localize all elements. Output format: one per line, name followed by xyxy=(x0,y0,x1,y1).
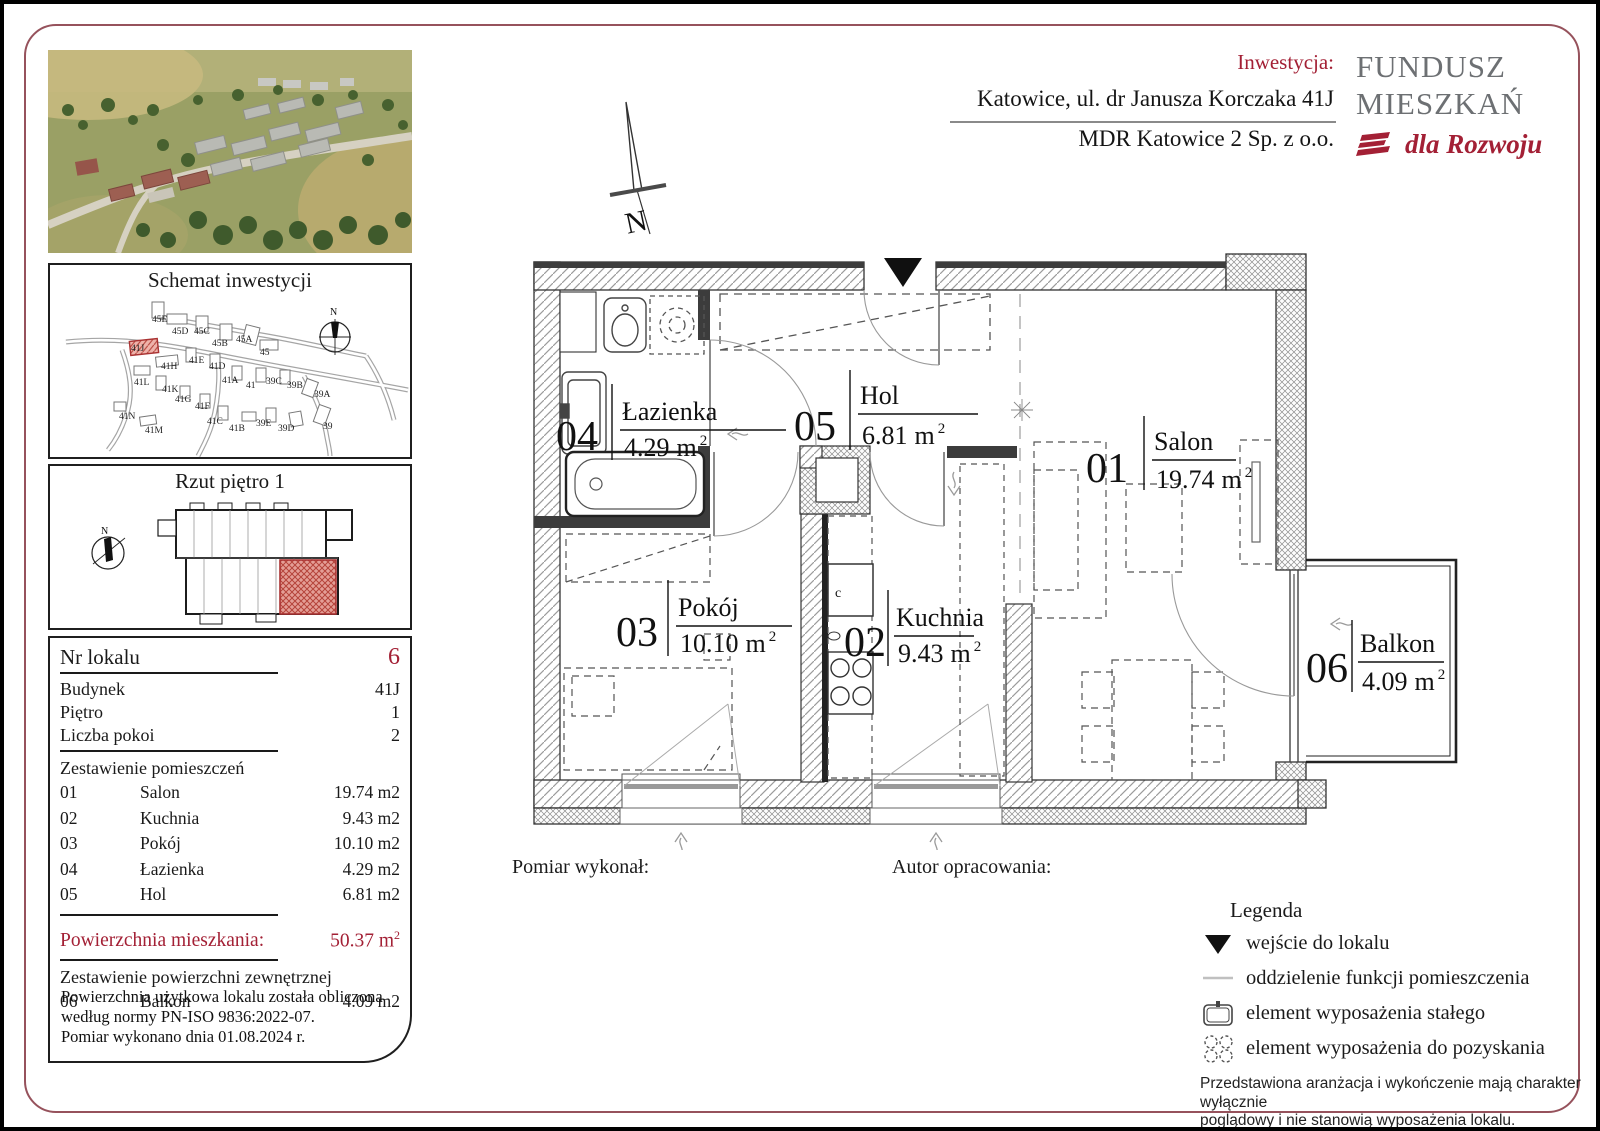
table-row: 04Łazienka4.29 m2 xyxy=(60,857,400,883)
svg-text:45: 45 xyxy=(260,348,270,358)
svg-text:39A: 39A xyxy=(314,390,331,400)
toilet xyxy=(604,298,646,352)
table-row: 02Kuchnia9.43 m2 xyxy=(60,806,400,832)
svg-text:45C: 45C xyxy=(194,327,210,337)
svg-text:39B: 39B xyxy=(287,381,303,391)
svg-text:41D: 41D xyxy=(209,362,226,372)
north-label: N xyxy=(622,204,650,241)
washing-machine xyxy=(650,296,704,354)
svg-text:41L: 41L xyxy=(134,378,150,388)
window-kuchnia xyxy=(870,704,1002,824)
svg-text:Salon: Salon xyxy=(1154,427,1213,456)
fund-logo: FUNDUSZ MIESZKAŃ dla Rozwoju xyxy=(1356,48,1576,160)
svg-text:41N: 41N xyxy=(119,412,136,422)
apartment-card-page: N xyxy=(0,0,1600,1131)
kitchen-salon-wall xyxy=(1006,604,1032,782)
measurement-note: Powierzchnia użytkowa lokalu została obl… xyxy=(61,987,396,1047)
svg-text:05: 05 xyxy=(794,404,836,450)
field-pietro: Piętro 1 xyxy=(60,701,400,724)
svg-text:41K: 41K xyxy=(162,385,179,395)
room-label-hol: 05 Hol 6.81m2 xyxy=(794,370,978,450)
wall-insulation-band xyxy=(936,262,1226,268)
logo-line2: MIESZKAŃ xyxy=(1356,85,1576,122)
acquirable-equipment-icon xyxy=(1200,1033,1236,1063)
logo-line1: FUNDUSZ xyxy=(1356,48,1576,85)
svg-text:02: 02 xyxy=(844,620,886,666)
room-label-pokoj: 03 Pokój 10.10m2 xyxy=(616,580,792,658)
svg-text:N: N xyxy=(330,307,337,318)
room-label-salon: 01 Salon 19.74m2 xyxy=(1086,416,1252,494)
logo-stripes-icon xyxy=(1356,130,1396,160)
field-liczba-pokoi: Liczba pokoi 2 xyxy=(60,724,400,747)
divider xyxy=(60,750,278,752)
aerial-photo xyxy=(48,50,412,253)
separation-line-icon xyxy=(1200,963,1236,993)
field-budynek: Budynek 41J xyxy=(60,678,400,701)
legend: Legenda wejście do lokalu oddzielenie fu… xyxy=(1200,898,1586,1131)
svg-text:41F: 41F xyxy=(195,402,210,412)
svg-text:45A: 45A xyxy=(236,335,253,345)
svg-text:c: c xyxy=(835,586,841,601)
site-scheme-map: 45E 45D 45C 45B 45A 45 41J 41H 41E 41D 4… xyxy=(48,287,412,459)
svg-text:N: N xyxy=(101,526,108,537)
author-label: Autor opracowania: xyxy=(892,856,1051,879)
svg-text:41B: 41B xyxy=(229,424,245,434)
table-row: 01Salon19.74 m2 xyxy=(60,780,400,806)
svg-text:Balkon: Balkon xyxy=(1360,629,1435,658)
tv-icon xyxy=(1252,462,1260,542)
wall-insulation-band xyxy=(534,262,864,268)
svg-text:41H: 41H xyxy=(161,362,178,372)
svg-text:41M: 41M xyxy=(145,426,164,436)
hol-wardrobe xyxy=(720,294,990,350)
svg-text:4.09m2: 4.09m2 xyxy=(1362,667,1445,696)
fixed-equipment-icon xyxy=(1200,998,1236,1028)
investment-address: Katowice, ul. dr Janusza Korczaka 41J xyxy=(834,86,1334,112)
svg-text:39: 39 xyxy=(323,422,333,432)
kitchen-wall-finish xyxy=(822,514,828,782)
svg-text:41: 41 xyxy=(246,381,256,391)
total-area-row: Powierzchnia mieszkania: 50.37 m2 xyxy=(60,920,400,957)
svg-text:41C: 41C xyxy=(207,417,223,427)
svg-text:Pokój: Pokój xyxy=(678,593,739,622)
kitchen-wall xyxy=(801,514,824,782)
svg-text:Hol: Hol xyxy=(860,381,899,410)
site-compass-icon: N xyxy=(319,307,351,355)
table-row: 05Hol6.81 m2 xyxy=(60,882,400,908)
svg-text:Kuchnia: Kuchnia xyxy=(896,603,985,632)
unit-number: 6 xyxy=(388,646,400,669)
svg-text:06: 06 xyxy=(1306,646,1348,692)
room-label-balkon: 06 Balkon 4.09m2 xyxy=(1306,620,1445,696)
electric-point-marker xyxy=(1011,399,1033,421)
table-row: 03Pokój10.10 m2 xyxy=(60,831,400,857)
divider xyxy=(60,914,278,916)
svg-text:Łazienka: Łazienka xyxy=(622,397,718,426)
entrance-triangle-icon xyxy=(1200,928,1236,958)
highlighted-unit xyxy=(280,560,336,614)
legend-disclaimer: Przedstawiona aranżacja i wykończenie ma… xyxy=(1200,1075,1586,1131)
svg-text:19.74m2: 19.74m2 xyxy=(1156,465,1252,494)
divider xyxy=(60,959,278,961)
window-pokoj xyxy=(620,704,742,824)
svg-text:03: 03 xyxy=(616,610,658,656)
floor-compass-icon: N xyxy=(92,526,125,569)
svg-text:01: 01 xyxy=(1086,446,1128,492)
svg-text:41J: 41J xyxy=(131,344,145,354)
legend-item-fixed: element wyposażenia stałego xyxy=(1200,998,1586,1028)
external-header: Zestawienie powierzchni zewnętrznej xyxy=(60,965,400,989)
address-underline xyxy=(950,121,1336,123)
svg-text:39E: 39E xyxy=(256,419,272,429)
svg-text:41A: 41A xyxy=(222,376,239,386)
rooms-header: Zestawienie pomieszczeń xyxy=(60,756,400,780)
svg-text:45E: 45E xyxy=(152,315,168,325)
svg-text:04: 04 xyxy=(556,414,598,460)
svg-text:6.81m2: 6.81m2 xyxy=(862,421,945,450)
installation-shaft xyxy=(800,446,870,514)
logo-line3: dla Rozwoju xyxy=(1405,129,1542,160)
divider xyxy=(60,672,278,674)
svg-text:39D: 39D xyxy=(278,424,295,434)
svg-text:41G: 41G xyxy=(175,395,192,405)
wall-niche xyxy=(560,292,596,352)
entrance-triangle-icon xyxy=(884,258,922,287)
exterior-walls xyxy=(534,254,1326,824)
field-nr-lokalu: Nr lokalu 6 xyxy=(60,646,400,669)
legend-item-entrance: wejście do lokalu xyxy=(1200,928,1586,958)
svg-text:10.10m2: 10.10m2 xyxy=(680,629,776,658)
investment-label: Inwestycja: xyxy=(834,50,1334,75)
developer-name: MDR Katowice 2 Sp. z o.o. xyxy=(834,126,1334,152)
unit-data-panel: Nr lokalu 6 Budynek 41J Piętro 1 Liczba … xyxy=(48,636,412,1063)
balcony-door xyxy=(1172,570,1298,762)
surveyor-label: Pomiar wykonał: xyxy=(512,856,649,879)
svg-text:9.43m2: 9.43m2 xyxy=(898,639,981,668)
floor-overview-drawing: N xyxy=(48,490,412,630)
fridge: c xyxy=(828,564,873,616)
floor-plan-drawing: N xyxy=(504,84,1479,850)
svg-text:45B: 45B xyxy=(212,339,228,349)
legend-item-separation: oddzielenie funkcji pomieszczenia xyxy=(1200,963,1586,993)
svg-text:41E: 41E xyxy=(189,356,205,366)
legend-title: Legenda xyxy=(1230,898,1586,923)
svg-text:4.29m2: 4.29m2 xyxy=(624,433,707,462)
legend-item-acquirable: element wyposażenia do pozyskania xyxy=(1200,1033,1586,1063)
svg-text:39C: 39C xyxy=(266,377,282,387)
svg-text:45D: 45D xyxy=(172,327,189,337)
